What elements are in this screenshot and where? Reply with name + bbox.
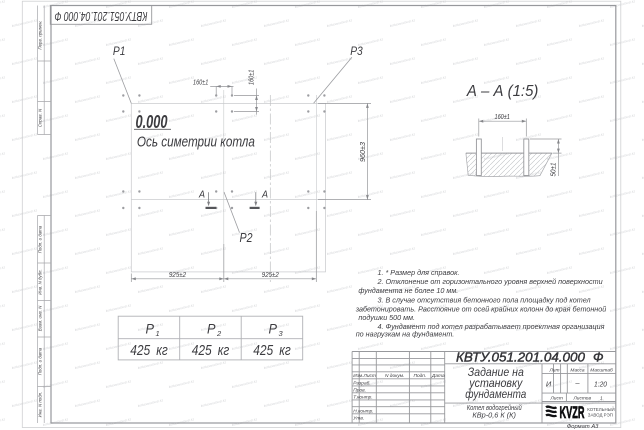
svg-text:kotlozavod.kvzr.kz: kotlozavod.kvzr.kz bbox=[42, 75, 69, 85]
svg-text:kotlozavod.kvzr.kz: kotlozavod.kvzr.kz bbox=[263, 360, 290, 370]
svg-text:kotlozavod.kvzr.kz: kotlozavod.kvzr.kz bbox=[326, 284, 353, 294]
svg-text:kotlozavod.kvzr.kz: kotlozavod.kvzr.kz bbox=[452, 132, 479, 142]
svg-text:2. Отклонение от горизонтал: 2. Отклонение от горизонтального уровня … bbox=[377, 277, 603, 286]
svg-text:kotlozavod.kvzr.kz: kotlozavod.kvzr.kz bbox=[263, 398, 290, 408]
svg-text:kotlozavod.kvzr.kz: kotlozavod.kvzr.kz bbox=[483, 265, 510, 275]
svg-text:kotlozavod.kvzr.kz: kotlozavod.kvzr.kz bbox=[0, 379, 6, 389]
svg-text:kotlozavod.kvzr.kz: kotlozavod.kvzr.kz bbox=[420, 189, 447, 199]
svg-text:kotlozavod.kvzr.kz: kotlozavod.kvzr.kz bbox=[452, 208, 479, 218]
svg-text:kotlozavod.kvzr.kz: kotlozavod.kvzr.kz bbox=[0, 0, 6, 9]
svg-text:Т.контр.: Т.контр. bbox=[353, 394, 372, 400]
svg-text:kotlozavod.kvzr.kz: kotlozavod.kvzr.kz bbox=[42, 227, 69, 237]
svg-text:kotlozavod.kvzr.kz: kotlozavod.kvzr.kz bbox=[0, 37, 6, 47]
svg-text:kotlozavod.kvzr.kz: kotlozavod.kvzr.kz bbox=[546, 75, 573, 85]
svg-text:1: 1 bbox=[600, 396, 603, 402]
svg-text:kotlozavod.kvzr.kz: kotlozavod.kvzr.kz bbox=[294, 37, 321, 47]
svg-text:kotlozavod.kvzr.kz: kotlozavod.kvzr.kz bbox=[137, 170, 164, 180]
svg-text:kotlozavod.kvzr.kz: kotlozavod.kvzr.kz bbox=[42, 189, 69, 199]
svg-text:kotlozavod.kvzr.kz: kotlozavod.kvzr.kz bbox=[326, 246, 353, 256]
svg-text:kotlozavod.kvzr.kz: kotlozavod.kvzr.kz bbox=[515, 246, 542, 256]
svg-text:kotlozavod.kvzr.kz: kotlozavod.kvzr.kz bbox=[452, 18, 479, 28]
svg-text:kotlozavod.kvzr.kz: kotlozavod.kvzr.kz bbox=[200, 360, 227, 370]
svg-text:kotlozavod.kvzr.kz: kotlozavod.kvzr.kz bbox=[389, 132, 416, 142]
svg-text:kotlozavod.kvzr.kz: kotlozavod.kvzr.kz bbox=[168, 227, 195, 237]
svg-text:kotlozavod.kvzr.kz: kotlozavod.kvzr.kz bbox=[11, 322, 38, 332]
svg-text:kotlozavod.kvzr.kz: kotlozavod.kvzr.kz bbox=[483, 189, 510, 199]
svg-text:Изм.Лист: Изм.Лист bbox=[353, 373, 376, 379]
svg-text:kotlozavod.kvzr.kz: kotlozavod.kvzr.kz bbox=[420, 379, 447, 389]
svg-text:kotlozavod.kvzr.kz: kotlozavod.kvzr.kz bbox=[326, 18, 353, 28]
svg-text:kotlozavod.kvzr.kz: kotlozavod.kvzr.kz bbox=[11, 18, 38, 28]
svg-text:Разраб.: Разраб. bbox=[353, 381, 370, 387]
svg-text:kotlozavod.kvzr.kz: kotlozavod.kvzr.kz bbox=[200, 170, 227, 180]
svg-text:kotlozavod.kvzr.kz: kotlozavod.kvzr.kz bbox=[11, 94, 38, 104]
svg-text:kotlozavod.kvzr.kz: kotlozavod.kvzr.kz bbox=[74, 246, 101, 256]
svg-text:kotlozavod.kvzr.kz: kotlozavod.kvzr.kz bbox=[168, 303, 195, 313]
svg-text:1:20: 1:20 bbox=[594, 379, 608, 388]
svg-text:kotlozavod.kvzr.kz: kotlozavod.kvzr.kz bbox=[200, 208, 227, 218]
svg-text:Р: Р bbox=[269, 321, 278, 337]
svg-text:Р3: Р3 bbox=[350, 44, 363, 58]
svg-text:kotlozavod.kvzr.kz: kotlozavod.kvzr.kz bbox=[74, 322, 101, 332]
svg-text:kotlozavod.kvzr.kz: kotlozavod.kvzr.kz bbox=[294, 341, 321, 351]
svg-text:kotlozavod.kvzr.kz: kotlozavod.kvzr.kz bbox=[105, 151, 132, 161]
svg-text:kotlozavod.kvzr.kz: kotlozavod.kvzr.kz bbox=[200, 94, 227, 104]
svg-text:1: 1 bbox=[156, 329, 160, 338]
svg-text:kotlozavod.kvzr.kz: kotlozavod.kvzr.kz bbox=[42, 341, 69, 351]
svg-text:Лит: Лит bbox=[549, 368, 560, 374]
svg-text:Утв.: Утв. bbox=[353, 415, 364, 421]
svg-text:2: 2 bbox=[216, 329, 222, 338]
svg-text:kotlozavod.kvzr.kz: kotlozavod.kvzr.kz bbox=[0, 189, 6, 199]
svg-text:kotlozavod.kvzr.kz: kotlozavod.kvzr.kz bbox=[420, 151, 447, 161]
svg-text:kotlozavod.kvzr.kz: kotlozavod.kvzr.kz bbox=[168, 417, 195, 427]
svg-text:kotlozavod.kvzr.kz: kotlozavod.kvzr.kz bbox=[74, 170, 101, 180]
svg-text:kotlozavod.kvzr.kz: kotlozavod.kvzr.kz bbox=[546, 227, 573, 237]
svg-text:925±2: 925±2 bbox=[262, 272, 279, 279]
svg-text:КОТЕЛЬНЫЙ: КОТЕЛЬНЫЙ bbox=[587, 407, 615, 412]
svg-text:kotlozavod.kvzr.kz: kotlozavod.kvzr.kz bbox=[42, 151, 69, 161]
svg-text:kotlozavod.kvzr.kz: kotlozavod.kvzr.kz bbox=[105, 113, 132, 123]
svg-text:0.000: 0.000 bbox=[136, 111, 168, 132]
svg-text:Листов: Листов bbox=[573, 396, 592, 402]
svg-text:N докум.: N докум. bbox=[385, 373, 404, 379]
svg-text:kotlozavod.kvzr.kz: kotlozavod.kvzr.kz bbox=[42, 265, 69, 275]
svg-text:А: А bbox=[198, 188, 205, 200]
svg-text:kotlozavod.kvzr.kz: kotlozavod.kvzr.kz bbox=[137, 208, 164, 218]
svg-text:kotlozavod.kvzr.kz: kotlozavod.kvzr.kz bbox=[609, 227, 636, 237]
svg-text:kotlozavod.kvzr.kz: kotlozavod.kvzr.kz bbox=[609, 113, 636, 123]
svg-text:kotlozavod.kvzr.kz: kotlozavod.kvzr.kz bbox=[546, 37, 573, 47]
svg-text:kotlozavod.kvzr.kz: kotlozavod.kvzr.kz bbox=[11, 398, 38, 408]
svg-text:kotlozavod.kvzr.kz: kotlozavod.kvzr.kz bbox=[263, 284, 290, 294]
svg-text:kotlozavod.kvzr.kz: kotlozavod.kvzr.kz bbox=[515, 56, 542, 66]
svg-text:kotlozavod.kvzr.kz: kotlozavod.kvzr.kz bbox=[74, 284, 101, 294]
svg-text:kotlozavod.kvzr.kz: kotlozavod.kvzr.kz bbox=[357, 113, 384, 123]
svg-text:kotlozavod.kvzr.kz: kotlozavod.kvzr.kz bbox=[294, 265, 321, 275]
svg-text:А: А bbox=[261, 188, 268, 200]
svg-text:kotlozavod.kvzr.kz: kotlozavod.kvzr.kz bbox=[294, 113, 321, 123]
svg-text:Справ. N: Справ. N bbox=[38, 108, 43, 127]
svg-text:3: 3 bbox=[279, 329, 284, 338]
svg-text:kotlozavod.kvzr.kz: kotlozavod.kvzr.kz bbox=[137, 398, 164, 408]
svg-text:kotlozavod.kvzr.kz: kotlozavod.kvzr.kz bbox=[105, 75, 132, 85]
svg-text:160±1: 160±1 bbox=[193, 79, 208, 86]
svg-text:А – А (1:5): А – А (1:5) bbox=[466, 83, 538, 100]
svg-text:kotlozavod.kvzr.kz: kotlozavod.kvzr.kz bbox=[326, 398, 353, 408]
svg-text:КВТУ.051.201.04.000: КВТУ.051.201.04.000 bbox=[456, 349, 586, 364]
svg-text:kotlozavod.kvzr.kz: kotlozavod.kvzr.kz bbox=[420, 341, 447, 351]
svg-text:kotlozavod.kvzr.kz: kotlozavod.kvzr.kz bbox=[137, 246, 164, 256]
svg-text:Подп.: Подп. bbox=[414, 373, 427, 379]
svg-text:Инв. N подл.: Инв. N подл. bbox=[38, 392, 43, 418]
svg-text:kotlozavod.kvzr.kz: kotlozavod.kvzr.kz bbox=[168, 37, 195, 47]
svg-text:kotlozavod.kvzr.kz: kotlozavod.kvzr.kz bbox=[326, 360, 353, 370]
svg-text:Взам. инв. N: Взам. инв. N bbox=[38, 305, 43, 331]
svg-text:kotlozavod.kvzr.kz: kotlozavod.kvzr.kz bbox=[0, 113, 6, 123]
svg-text:kotlozavod.kvzr.kz: kotlozavod.kvzr.kz bbox=[200, 398, 227, 408]
svg-text:Ф: Ф bbox=[593, 349, 603, 364]
svg-text:ЗАВОД РЭП: ЗАВОД РЭП bbox=[588, 412, 613, 417]
svg-text:kotlozavod.kvzr.kz: kotlozavod.kvzr.kz bbox=[294, 303, 321, 313]
svg-text:Н.контр.: Н.контр. bbox=[353, 408, 373, 414]
svg-text:Перв. примен.: Перв. примен. bbox=[38, 20, 43, 49]
svg-text:kotlozavod.kvzr.kz: kotlozavod.kvzr.kz bbox=[11, 132, 38, 142]
svg-text:kotlozavod.kvzr.kz: kotlozavod.kvzr.kz bbox=[357, 341, 384, 351]
svg-text:425 кг: 425 кг bbox=[130, 342, 168, 359]
svg-text:kotlozavod.kvzr.kz: kotlozavod.kvzr.kz bbox=[105, 379, 132, 389]
svg-text:kotlozavod.kvzr.kz: kotlozavod.kvzr.kz bbox=[11, 360, 38, 370]
svg-text:kotlozavod.kvzr.kz: kotlozavod.kvzr.kz bbox=[200, 18, 227, 28]
svg-text:kotlozavod.kvzr.kz: kotlozavod.kvzr.kz bbox=[578, 170, 605, 180]
svg-text:Подп. и дата: Подп. и дата bbox=[38, 347, 43, 375]
svg-text:kotlozavod.kvzr.kz: kotlozavod.kvzr.kz bbox=[0, 341, 6, 351]
svg-text:kotlozavod.kvzr.kz: kotlozavod.kvzr.kz bbox=[231, 151, 258, 161]
svg-text:kotlozavod.kvzr.kz: kotlozavod.kvzr.kz bbox=[231, 303, 258, 313]
svg-text:по нагрузкам на фундамент.: по нагрузкам на фундамент. bbox=[356, 330, 455, 339]
svg-text:925±2: 925±2 bbox=[169, 272, 186, 279]
svg-text:kotlozavod.kvzr.kz: kotlozavod.kvzr.kz bbox=[389, 18, 416, 28]
svg-text:kotlozavod.kvzr.kz: kotlozavod.kvzr.kz bbox=[263, 208, 290, 218]
svg-text:KVZR: KVZR bbox=[560, 403, 585, 422]
svg-text:kotlozavod.kvzr.kz: kotlozavod.kvzr.kz bbox=[546, 189, 573, 199]
svg-text:kotlozavod.kvzr.kz: kotlozavod.kvzr.kz bbox=[483, 37, 510, 47]
svg-text:kotlozavod.kvzr.kz: kotlozavod.kvzr.kz bbox=[11, 246, 38, 256]
svg-text:kotlozavod.kvzr.kz: kotlozavod.kvzr.kz bbox=[200, 284, 227, 294]
svg-text:фундамента: фундамента bbox=[465, 387, 526, 401]
svg-text:kotlozavod.kvzr.kz: kotlozavod.kvzr.kz bbox=[357, 227, 384, 237]
svg-text:Р1: Р1 bbox=[113, 44, 126, 58]
svg-text:kotlozavod.kvzr.kz: kotlozavod.kvzr.kz bbox=[11, 170, 38, 180]
svg-text:kotlozavod.kvzr.kz: kotlozavod.kvzr.kz bbox=[515, 18, 542, 28]
svg-text:kotlozavod.kvzr.kz: kotlozavod.kvzr.kz bbox=[74, 208, 101, 218]
svg-text:КВТУ.051.201.04.000 Ф: КВТУ.051.201.04.000 Ф bbox=[54, 9, 147, 23]
svg-text:kotlozavod.kvzr.kz: kotlozavod.kvzr.kz bbox=[609, 417, 636, 427]
svg-text:kotlozavod.kvzr.kz: kotlozavod.kvzr.kz bbox=[137, 94, 164, 104]
svg-text:3. В случае отсутствия бето: 3. В случае отсутствия бетонного пола пл… bbox=[378, 295, 591, 304]
svg-text:подушки 500 мм.: подушки 500 мм. bbox=[358, 313, 415, 322]
svg-text:kotlozavod.kvzr.kz: kotlozavod.kvzr.kz bbox=[263, 56, 290, 66]
svg-text:kotlozavod.kvzr.kz: kotlozavod.kvzr.kz bbox=[263, 170, 290, 180]
svg-text:kotlozavod.kvzr.kz: kotlozavod.kvzr.kz bbox=[609, 37, 636, 47]
svg-text:kotlozavod.kvzr.kz: kotlozavod.kvzr.kz bbox=[42, 417, 69, 427]
svg-text:kotlozavod.kvzr.kz: kotlozavod.kvzr.kz bbox=[326, 322, 353, 332]
svg-text:kotlozavod.kvzr.kz: kotlozavod.kvzr.kz bbox=[231, 37, 258, 47]
svg-text:kotlozavod.kvzr.kz: kotlozavod.kvzr.kz bbox=[231, 265, 258, 275]
svg-text:kotlozavod.kvzr.kz: kotlozavod.kvzr.kz bbox=[168, 151, 195, 161]
svg-text:kotlozavod.kvzr.kz: kotlozavod.kvzr.kz bbox=[609, 75, 636, 85]
svg-text:kotlozavod.kvzr.kz: kotlozavod.kvzr.kz bbox=[326, 94, 353, 104]
svg-text:kotlozavod.kvzr.kz: kotlozavod.kvzr.kz bbox=[546, 265, 573, 275]
svg-text:kotlozavod.kvzr.kz: kotlozavod.kvzr.kz bbox=[294, 227, 321, 237]
svg-text:kotlozavod.kvzr.kz: kotlozavod.kvzr.kz bbox=[294, 379, 321, 389]
svg-text:Лист: Лист bbox=[550, 396, 563, 402]
svg-text:kotlozavod.kvzr.kz: kotlozavod.kvzr.kz bbox=[0, 227, 6, 237]
svg-text:kotlozavod.kvzr.kz: kotlozavod.kvzr.kz bbox=[609, 151, 636, 161]
svg-text:kotlozavod.kvzr.kz: kotlozavod.kvzr.kz bbox=[74, 398, 101, 408]
svg-text:kotlozavod.kvzr.kz: kotlozavod.kvzr.kz bbox=[546, 113, 573, 123]
svg-text:Р2: Р2 bbox=[240, 230, 254, 245]
svg-text:И: И bbox=[546, 379, 552, 388]
svg-text:kotlozavod.kvzr.kz: kotlozavod.kvzr.kz bbox=[609, 303, 636, 313]
svg-text:kotlozavod.kvzr.kz: kotlozavod.kvzr.kz bbox=[578, 94, 605, 104]
svg-text:Подп. и дата: Подп. и дата bbox=[38, 225, 43, 253]
svg-text:960±3: 960±3 bbox=[360, 142, 367, 162]
svg-text:kotlozavod.kvzr.kz: kotlozavod.kvzr.kz bbox=[389, 246, 416, 256]
svg-text:kotlozavod.kvzr.kz: kotlozavod.kvzr.kz bbox=[231, 417, 258, 427]
svg-text:kotlozavod.kvzr.kz: kotlozavod.kvzr.kz bbox=[168, 379, 195, 389]
svg-text:kotlozavod.kvzr.kz: kotlozavod.kvzr.kz bbox=[231, 113, 258, 123]
svg-text:Пров.: Пров. bbox=[353, 387, 366, 393]
svg-text:kotlozavod.kvzr.kz: kotlozavod.kvzr.kz bbox=[389, 56, 416, 66]
svg-text:Р: Р bbox=[207, 321, 216, 337]
svg-text:kotlozavod.kvzr.kz: kotlozavod.kvzr.kz bbox=[11, 56, 38, 66]
svg-text:kotlozavod.kvzr.kz: kotlozavod.kvzr.kz bbox=[420, 113, 447, 123]
svg-text:kotlozavod.kvzr.kz: kotlozavod.kvzr.kz bbox=[326, 132, 353, 142]
svg-text:КВр-0,6 К (К): КВр-0,6 К (К) bbox=[472, 411, 516, 420]
svg-text:kotlozavod.kvzr.kz: kotlozavod.kvzr.kz bbox=[105, 227, 132, 237]
svg-text:kotlozavod.kvzr.kz: kotlozavod.kvzr.kz bbox=[483, 227, 510, 237]
svg-text:1. * Размер для справок.: 1. * Размер для справок. bbox=[378, 268, 460, 277]
svg-text:kotlozavod.kvzr.kz: kotlozavod.kvzr.kz bbox=[74, 56, 101, 66]
svg-text:kotlozavod.kvzr.kz: kotlozavod.kvzr.kz bbox=[515, 208, 542, 218]
svg-text:kotlozavod.kvzr.kz: kotlozavod.kvzr.kz bbox=[263, 18, 290, 28]
svg-text:kotlozavod.kvzr.kz: kotlozavod.kvzr.kz bbox=[74, 360, 101, 370]
svg-text:Масштаб: Масштаб bbox=[590, 368, 613, 374]
svg-text:kotlozavod.kvzr.kz: kotlozavod.kvzr.kz bbox=[42, 113, 69, 123]
svg-text:kotlozavod.kvzr.kz: kotlozavod.kvzr.kz bbox=[137, 284, 164, 294]
svg-text:kotlozavod.kvzr.kz: kotlozavod.kvzr.kz bbox=[42, 37, 69, 47]
svg-text:Масса: Масса bbox=[570, 368, 585, 374]
svg-text:kotlozavod.kvzr.kz: kotlozavod.kvzr.kz bbox=[420, 227, 447, 237]
svg-text:kotlozavod.kvzr.kz: kotlozavod.kvzr.kz bbox=[74, 94, 101, 104]
svg-text:–: – bbox=[574, 379, 580, 388]
svg-text:kotlozavod.kvzr.kz: kotlozavod.kvzr.kz bbox=[263, 94, 290, 104]
svg-text:kotlozavod.kvzr.kz: kotlozavod.kvzr.kz bbox=[420, 417, 447, 427]
svg-text:kotlozavod.kvzr.kz: kotlozavod.kvzr.kz bbox=[231, 189, 258, 199]
svg-text:kotlozavod.kvzr.kz: kotlozavod.kvzr.kz bbox=[168, 189, 195, 199]
svg-text:425 кг: 425 кг bbox=[192, 342, 230, 359]
svg-text:50±1: 50±1 bbox=[550, 162, 557, 176]
svg-text:kotlozavod.kvzr.kz: kotlozavod.kvzr.kz bbox=[609, 265, 636, 275]
svg-text:kotlozavod.kvzr.kz: kotlozavod.kvzr.kz bbox=[578, 132, 605, 142]
svg-text:kotlozavod.kvzr.kz: kotlozavod.kvzr.kz bbox=[0, 265, 6, 275]
svg-text:kotlozavod.kvzr.kz: kotlozavod.kvzr.kz bbox=[578, 18, 605, 28]
svg-text:kotlozavod.kvzr.kz: kotlozavod.kvzr.kz bbox=[420, 75, 447, 85]
svg-text:kotlozavod.kvzr.kz: kotlozavod.kvzr.kz bbox=[11, 284, 38, 294]
svg-text:kotlozavod.kvzr.kz: kotlozavod.kvzr.kz bbox=[578, 246, 605, 256]
svg-text:kotlozavod.kvzr.kz: kotlozavod.kvzr.kz bbox=[42, 303, 69, 313]
svg-text:kotlozavod.kvzr.kz: kotlozavod.kvzr.kz bbox=[42, 379, 69, 389]
svg-text:kotlozavod.kvzr.kz: kotlozavod.kvzr.kz bbox=[326, 208, 353, 218]
svg-text:фундамента не более 10 мм.: фундамента не более 10 мм. bbox=[358, 286, 458, 295]
svg-text:kotlozavod.kvzr.kz: kotlozavod.kvzr.kz bbox=[609, 189, 636, 199]
svg-text:160±1: 160±1 bbox=[249, 70, 256, 85]
svg-text:kotlozavod.kvzr.kz: kotlozavod.kvzr.kz bbox=[168, 75, 195, 85]
svg-text:kotlozavod.kvzr.kz: kotlozavod.kvzr.kz bbox=[137, 360, 164, 370]
svg-text:kotlozavod.kvzr.kz: kotlozavod.kvzr.kz bbox=[0, 75, 6, 85]
svg-text:160±1: 160±1 bbox=[495, 114, 510, 121]
svg-text:Ось симетрии котла: Ось симетрии котла bbox=[137, 133, 255, 150]
svg-text:kotlozavod.kvzr.kz: kotlozavod.kvzr.kz bbox=[420, 37, 447, 47]
svg-text:kotlozavod.kvzr.kz: kotlozavod.kvzr.kz bbox=[263, 132, 290, 142]
svg-text:kotlozavod.kvzr.kz: kotlozavod.kvzr.kz bbox=[357, 75, 384, 85]
svg-text:kotlozavod.kvzr.kz: kotlozavod.kvzr.kz bbox=[294, 151, 321, 161]
svg-text:Инв. N дубл.: Инв. N дубл. bbox=[38, 269, 43, 294]
svg-text:kotlozavod.kvzr.kz: kotlozavod.kvzr.kz bbox=[294, 417, 321, 427]
svg-text:kotlozavod.kvzr.kz: kotlozavod.kvzr.kz bbox=[609, 341, 636, 351]
svg-text:kotlozavod.kvzr.kz: kotlozavod.kvzr.kz bbox=[326, 170, 353, 180]
svg-text:kotlozavod.kvzr.kz: kotlozavod.kvzr.kz bbox=[357, 189, 384, 199]
svg-text:kotlozavod.kvzr.kz: kotlozavod.kvzr.kz bbox=[578, 208, 605, 218]
svg-text:kotlozavod.kvzr.kz: kotlozavod.kvzr.kz bbox=[294, 75, 321, 85]
svg-text:Р: Р bbox=[146, 321, 155, 337]
svg-text:kotlozavod.kvzr.kz: kotlozavod.kvzr.kz bbox=[74, 132, 101, 142]
svg-text:kotlozavod.kvzr.kz: kotlozavod.kvzr.kz bbox=[578, 56, 605, 66]
svg-text:425 кг: 425 кг bbox=[253, 342, 291, 359]
svg-text:kotlozavod.kvzr.kz: kotlozavod.kvzr.kz bbox=[168, 113, 195, 123]
svg-text:kotlozavod.kvzr.kz: kotlozavod.kvzr.kz bbox=[0, 303, 6, 313]
svg-text:kotlozavod.kvzr.kz: kotlozavod.kvzr.kz bbox=[389, 170, 416, 180]
svg-text:kotlozavod.kvzr.kz: kotlozavod.kvzr.kz bbox=[452, 246, 479, 256]
svg-text:kotlozavod.kvzr.kz: kotlozavod.kvzr.kz bbox=[389, 94, 416, 104]
svg-text:kotlozavod.kvzr.kz: kotlozavod.kvzr.kz bbox=[231, 379, 258, 389]
svg-text:kotlozavod.kvzr.kz: kotlozavod.kvzr.kz bbox=[200, 56, 227, 66]
svg-text:kotlozavod.kvzr.kz: kotlozavod.kvzr.kz bbox=[11, 208, 38, 218]
svg-text:kotlozavod.kvzr.kz: kotlozavod.kvzr.kz bbox=[609, 379, 636, 389]
svg-text:kotlozavod.kvzr.kz: kotlozavod.kvzr.kz bbox=[452, 56, 479, 66]
svg-text:kotlozavod.kvzr.kz: kotlozavod.kvzr.kz bbox=[105, 189, 132, 199]
svg-text:kotlozavod.kvzr.kz: kotlozavod.kvzr.kz bbox=[389, 208, 416, 218]
svg-text:kotlozavod.kvzr.kz: kotlozavod.kvzr.kz bbox=[105, 265, 132, 275]
svg-text:kotlozavod.kvzr.kz: kotlozavod.kvzr.kz bbox=[263, 246, 290, 256]
svg-text:kotlozavod.kvzr.kz: kotlozavod.kvzr.kz bbox=[137, 56, 164, 66]
svg-text:kotlozavod.kvzr.kz: kotlozavod.kvzr.kz bbox=[105, 303, 132, 313]
svg-text:kotlozavod.kvzr.kz: kotlozavod.kvzr.kz bbox=[200, 246, 227, 256]
svg-text:kotlozavod.kvzr.kz: kotlozavod.kvzr.kz bbox=[105, 417, 132, 427]
svg-text:kotlozavod.kvzr.kz: kotlozavod.kvzr.kz bbox=[0, 151, 6, 161]
svg-text:Дата: Дата bbox=[431, 373, 445, 379]
svg-text:Формат А3: Формат А3 bbox=[567, 424, 599, 430]
svg-text:kotlozavod.kvzr.kz: kotlozavod.kvzr.kz bbox=[0, 417, 6, 427]
